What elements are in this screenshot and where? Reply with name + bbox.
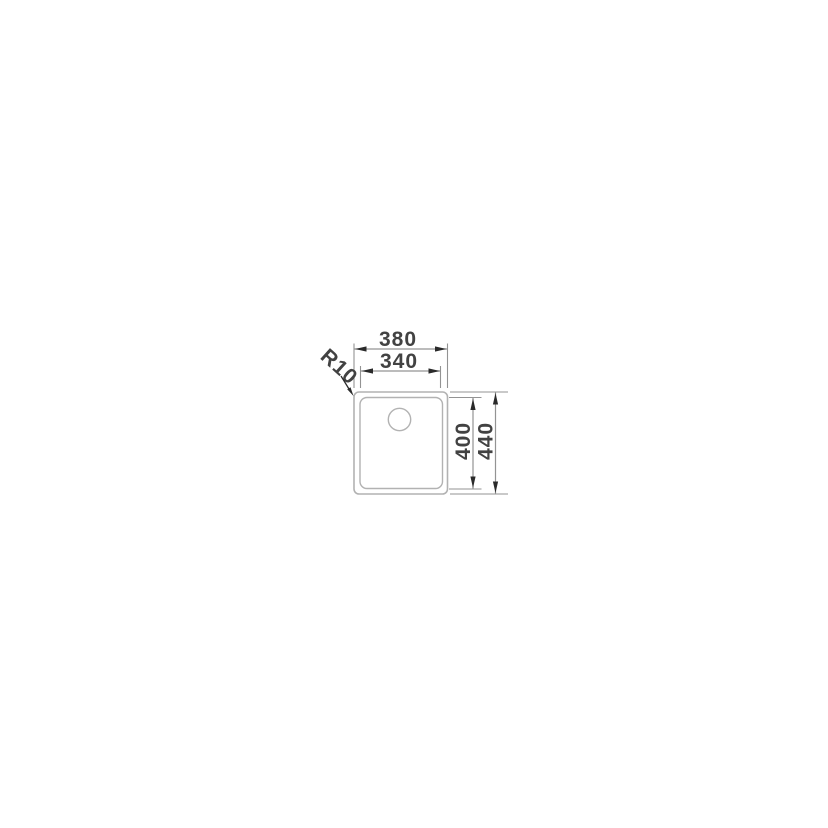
inner-depth-label: 400 <box>452 422 475 460</box>
inner-width-label: 340 <box>380 350 418 373</box>
arrowhead-up-icon <box>470 399 475 411</box>
arrowhead-down-icon <box>470 477 475 489</box>
corner-radius-callout: R10 <box>316 345 362 396</box>
arrowhead-right-icon <box>435 346 447 351</box>
sink-outer-rim <box>354 392 448 494</box>
arrowhead-left-icon <box>355 346 367 351</box>
outer-width-label: 380 <box>379 328 417 351</box>
sink-outline <box>354 392 448 494</box>
arrowhead-down-icon <box>493 482 498 494</box>
arrowhead-left-icon <box>362 368 374 373</box>
dimension-inner-width: 340 <box>361 350 441 388</box>
drawing-canvas: 380 340 400 440 <box>0 0 828 828</box>
arrowhead-up-icon <box>493 393 498 405</box>
outer-depth-label: 440 <box>475 422 498 460</box>
arrowhead-right-icon <box>429 368 441 373</box>
corner-radius-label: R10 <box>316 345 362 390</box>
sink-dimension-diagram: 380 340 400 440 <box>0 0 828 828</box>
